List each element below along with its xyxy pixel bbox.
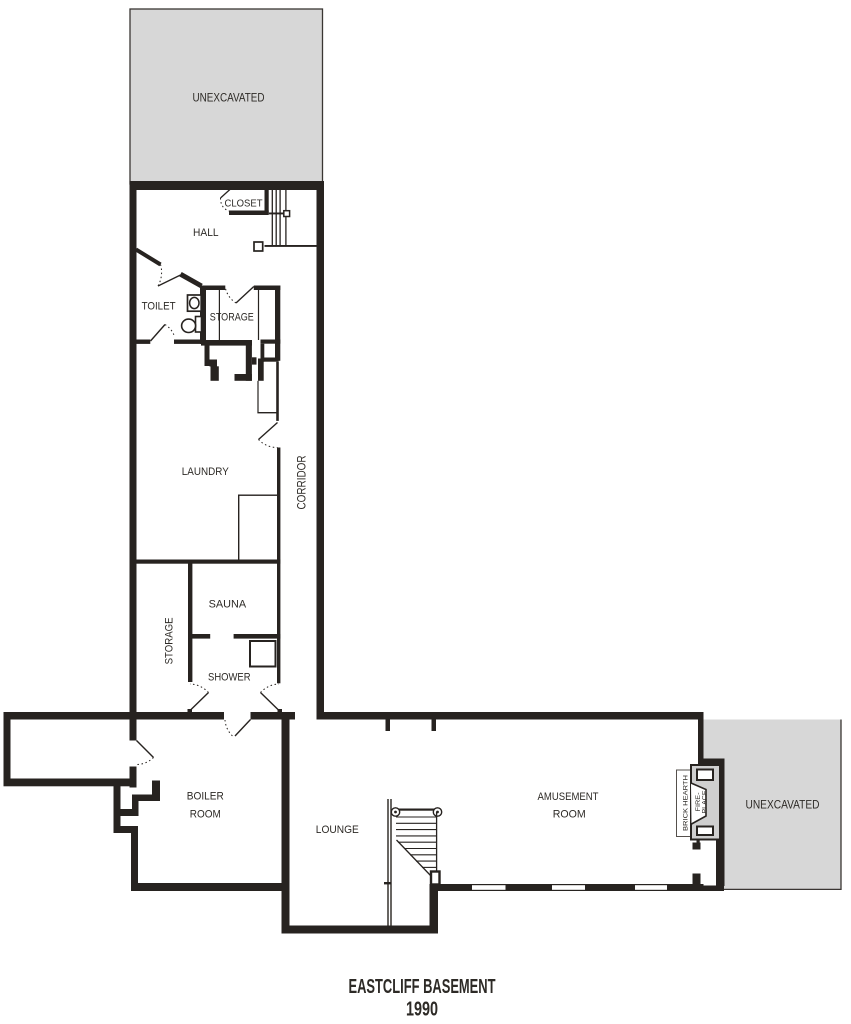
svg-text:EASTCLIFF BASEMENT: EASTCLIFF BASEMENT bbox=[349, 976, 496, 998]
svg-text:PLACE: PLACE bbox=[701, 791, 708, 814]
svg-text:LAUNDRY: LAUNDRY bbox=[182, 466, 230, 478]
svg-text:ROOM: ROOM bbox=[190, 809, 221, 821]
svg-text:STORAGE: STORAGE bbox=[210, 312, 254, 324]
svg-text:ROOM: ROOM bbox=[553, 809, 586, 821]
svg-text:SHOWER: SHOWER bbox=[208, 672, 251, 684]
svg-text:HALL: HALL bbox=[193, 227, 219, 239]
svg-text:UNEXCAVATED: UNEXCAVATED bbox=[746, 800, 820, 812]
svg-text:1990: 1990 bbox=[406, 999, 438, 1021]
svg-text:CORRIDOR: CORRIDOR bbox=[295, 455, 309, 509]
svg-text:SAUNA: SAUNA bbox=[209, 599, 247, 611]
svg-text:CLOSET: CLOSET bbox=[225, 198, 264, 210]
svg-text:STORAGE: STORAGE bbox=[164, 617, 176, 664]
svg-text:BOILER: BOILER bbox=[187, 791, 224, 803]
svg-text:TOILET: TOILET bbox=[142, 301, 176, 313]
svg-text:AMUSEMENT: AMUSEMENT bbox=[538, 791, 599, 803]
svg-text:LOUNGE: LOUNGE bbox=[316, 824, 359, 836]
svg-text:UNEXCAVATED: UNEXCAVATED bbox=[193, 93, 265, 105]
svg-text:BRICK HEARTH: BRICK HEARTH bbox=[683, 774, 690, 831]
